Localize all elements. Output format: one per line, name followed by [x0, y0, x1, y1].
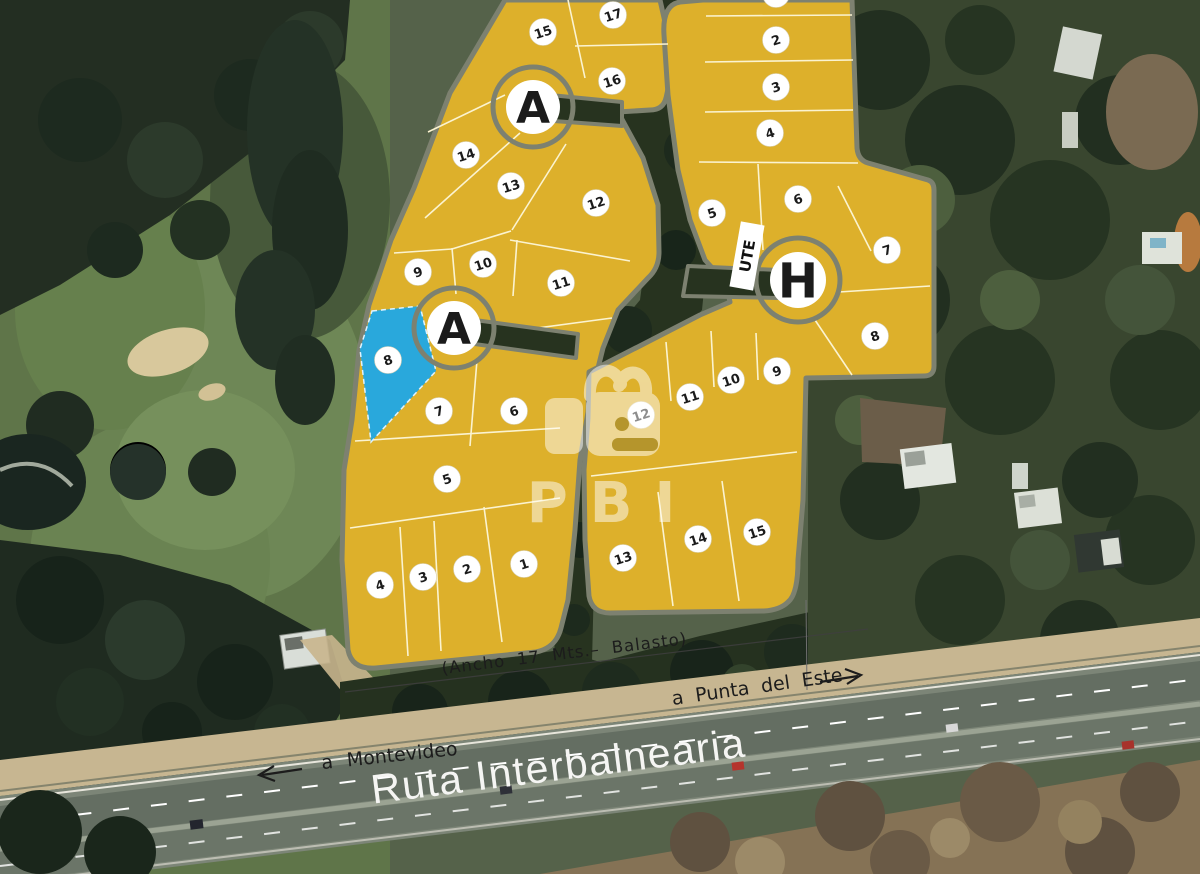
lot-badge-H-7: 7	[874, 237, 901, 264]
culdesac-label: H	[778, 253, 818, 309]
culdesac-label: A	[516, 83, 550, 134]
lot-badge-A-9: 9	[405, 259, 432, 286]
lot-badge-A-3: 3	[410, 564, 437, 591]
lot-badge-A-13: 13	[498, 173, 525, 200]
lot-badge-H-15: 15	[744, 519, 771, 546]
watermark-text: PBI	[527, 471, 698, 536]
lot-badge-A-14: 14	[453, 142, 480, 169]
lot-badge-H-3: 3	[763, 74, 790, 101]
lot-badge-A-12: 12	[583, 190, 610, 217]
lot-badge-H-4: 4	[757, 120, 784, 147]
car-light	[946, 723, 959, 732]
lot-badge-H-10: 10	[718, 367, 745, 394]
lot-badge-A-4: 4	[367, 572, 394, 599]
lot-badge-A-16: 16	[599, 68, 626, 95]
lot-badge-H-5: 5	[699, 200, 726, 227]
car-red	[1122, 740, 1135, 749]
lot-badge-A-6: 6	[501, 398, 528, 425]
lot-badge-H-11: 11	[677, 384, 704, 411]
aerial-plan-svg: AAH UTE 17151614131291011876543211234567…	[0, 0, 1200, 874]
lot-badge-A-8: 8	[375, 347, 402, 374]
lot-badge-A-7: 7	[426, 398, 453, 425]
culdesac-label: A	[437, 304, 471, 355]
car-dark	[190, 819, 204, 830]
lot-badge-H-9: 9	[764, 358, 791, 385]
lot-badge-A-17: 17	[600, 2, 627, 29]
lot-badge-A-11: 11	[548, 270, 575, 297]
lot-badge-H-2: 2	[763, 27, 790, 54]
plot-map: AAH UTE 17151614131291011876543211234567…	[0, 0, 1200, 874]
lot-badge-A-5: 5	[434, 466, 461, 493]
lot-badge-A-15: 15	[530, 19, 557, 46]
lot-badge-H-13: 13	[610, 545, 637, 572]
lot-badge-A-10: 10	[470, 251, 497, 278]
lot-badge-A-1: 1	[511, 551, 538, 578]
lot-badge-H-6: 6	[785, 186, 812, 213]
lot-badge-A-2: 2	[454, 556, 481, 583]
lot-badge-H-8: 8	[862, 323, 889, 350]
